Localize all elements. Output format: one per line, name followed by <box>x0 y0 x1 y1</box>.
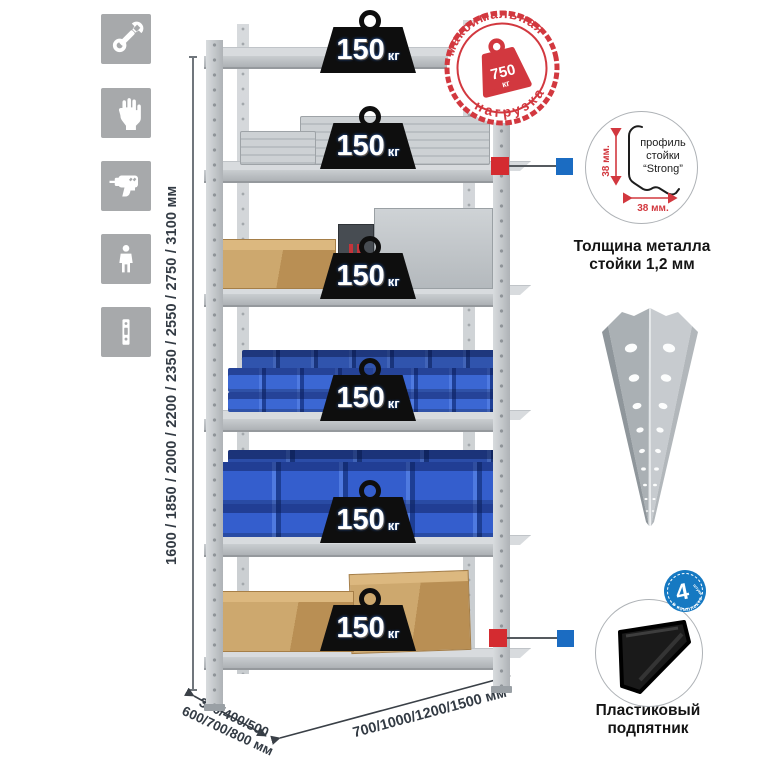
shelf-load-value: 150 <box>336 262 384 291</box>
shelf-load-unit: кг <box>388 396 400 411</box>
shelf-load-badge-2: 150 кг <box>320 106 416 170</box>
height-dimension-line <box>192 57 194 690</box>
shelf-load-value: 150 <box>336 132 384 161</box>
height-dimension-label: 1600 / 1850 / 2000 / 2200 / 2350 / 2550 … <box>160 70 184 680</box>
rack-foot-right <box>491 686 512 693</box>
foot-connector-line <box>507 637 559 639</box>
weight-body: 150 кг <box>320 253 416 299</box>
feature-tile-drill <box>101 161 151 211</box>
shelf-load-unit: кг <box>388 626 400 641</box>
weight-body: 150 кг <box>320 605 416 651</box>
shelf-load-value: 150 <box>336 614 384 643</box>
aluminum-case-small <box>240 131 316 165</box>
feature-tile-upright <box>101 307 151 357</box>
rack-foot-left <box>204 704 225 711</box>
shelf-load-badge-1: 150 кг <box>320 10 416 74</box>
wrench-icon <box>108 21 144 57</box>
profile-label-line1: профиль <box>640 137 686 149</box>
drill-icon <box>108 168 144 204</box>
shelf-load-unit: кг <box>388 144 400 159</box>
foot-marker-blue <box>557 630 574 647</box>
profile-label-line2: стойки <box>646 150 680 162</box>
shelf-load-unit: кг <box>388 48 400 63</box>
shelf-load-badge-4: 150 кг <box>320 358 416 422</box>
shelf-load-value: 150 <box>336 36 384 65</box>
profile-dim-horizontal: 38 мм. <box>637 203 669 214</box>
max-load-stamp-graphic: максимальная нагрузка 750 кг <box>432 0 572 138</box>
feature-tile-assembly <box>101 14 151 64</box>
shelf-load-unit: кг <box>388 518 400 533</box>
gloves-icon <box>109 96 143 130</box>
included-count-badge: 4 штуки в комплекте <box>661 567 709 615</box>
weight-body: 150 кг <box>320 27 416 73</box>
profile-callout-circle: 38 мм. 38 мм. профиль стойки “Strong” <box>585 111 698 224</box>
shelf-load-value: 150 <box>336 384 384 413</box>
profile-cross-section-drawing: 38 мм. 38 мм. профиль стойки “Strong” <box>586 112 697 223</box>
metal-corner-upright-image <box>588 300 712 535</box>
included-count-badge-graphic: 4 штуки в комплекте <box>661 567 709 615</box>
shelf-load-badge-5: 150 кг <box>320 480 416 544</box>
rack-back-post-left <box>237 24 249 674</box>
shelf-load-unit: кг <box>388 274 400 289</box>
foot-caption-line2: подпятник <box>607 720 688 737</box>
profile-connector-line <box>509 165 559 167</box>
foot-callout-circle <box>595 599 703 707</box>
profile-caption-line2: стойки 1,2 мм <box>589 256 694 273</box>
person-icon <box>110 243 142 275</box>
feature-tile-person <box>101 234 151 284</box>
shelf-load-value: 150 <box>336 506 384 535</box>
weight-body: 150 кг <box>320 123 416 169</box>
rack-front-post-left <box>206 40 223 706</box>
foot-caption: Пластиковый подпятник <box>563 702 733 739</box>
profile-caption-line1: Толщина металла <box>574 238 711 255</box>
shelf-load-badge-3: 150 кг <box>320 236 416 300</box>
shelf-load-badge-6: 150 кг <box>320 588 416 652</box>
feature-tile-gloves <box>101 88 151 138</box>
weight-body: 150 кг <box>320 375 416 421</box>
profile-caption: Толщина металла стойки 1,2 мм <box>558 238 726 275</box>
profile-marker-blue <box>556 158 573 175</box>
upright-profile-icon <box>109 315 143 349</box>
height-line-top-cap <box>189 56 197 58</box>
infographic-shelving-rack: 1600 / 1850 / 2000 / 2200 / 2350 / 2550 … <box>0 0 765 765</box>
foot-marker-red <box>489 629 507 647</box>
plastic-foot-image <box>596 600 702 706</box>
profile-marker-red <box>491 157 509 175</box>
weight-body: 150 кг <box>320 497 416 543</box>
profile-dim-vertical: 38 мм. <box>601 145 612 177</box>
profile-label-line3: “Strong” <box>643 163 683 175</box>
cardboard-box-shelf3 <box>212 239 336 289</box>
max-load-stamp: максимальная нагрузка 750 кг <box>432 0 572 138</box>
